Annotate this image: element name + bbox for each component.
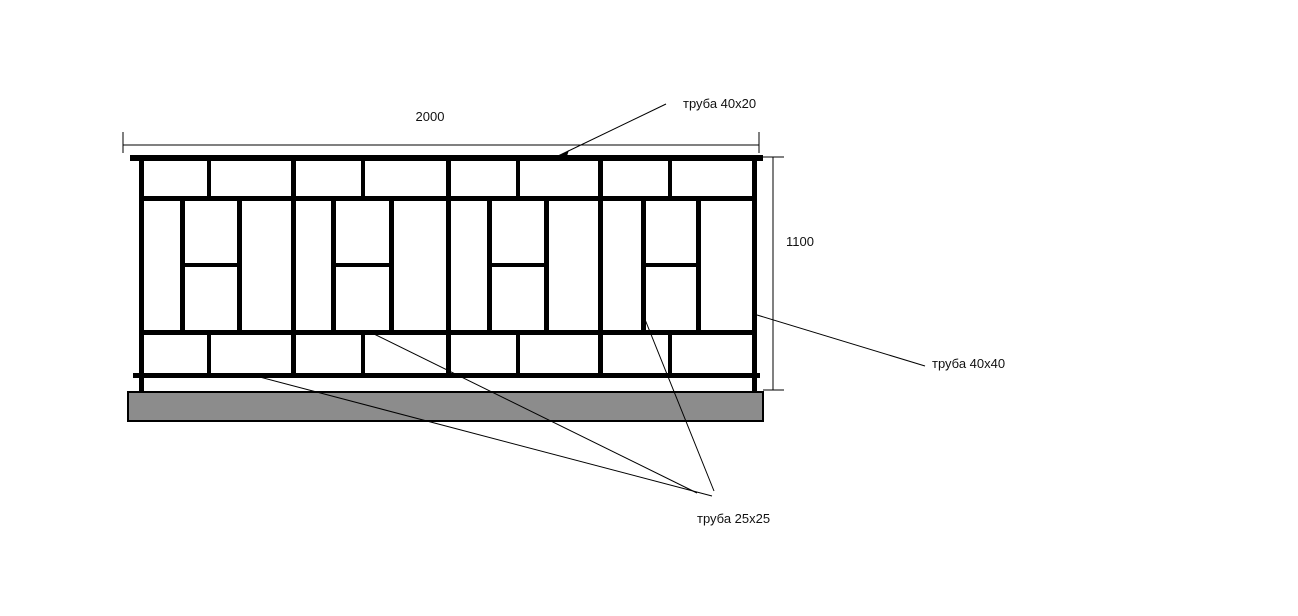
top-rail-callout-label: труба 40x20 (683, 96, 756, 111)
leader-lines (252, 104, 925, 496)
connector (487, 263, 549, 267)
divider (361, 161, 365, 197)
leader-top-rail (558, 104, 666, 156)
divider (207, 335, 211, 373)
top-rail (130, 155, 763, 161)
leader-frame (757, 315, 925, 366)
right-end-post (752, 161, 757, 392)
middle-band-connectors (180, 263, 701, 267)
divider (207, 161, 211, 197)
height-dimension (763, 157, 784, 390)
divider (516, 161, 520, 197)
fence-panel (130, 155, 763, 392)
connector (180, 263, 242, 267)
foundation-base (128, 392, 763, 421)
middle-band-bars (180, 201, 701, 330)
left-end-post (139, 161, 144, 392)
connector (331, 263, 394, 267)
main-post (446, 161, 451, 378)
divider (516, 335, 520, 373)
main-posts (291, 161, 603, 378)
width-dimension-label: 2000 (416, 109, 445, 124)
divider (668, 335, 672, 373)
main-post (291, 161, 296, 378)
fence-section-drawing: 2000 1100 (0, 0, 1298, 616)
width-dimension (123, 132, 759, 153)
drawing-canvas: 2000 1100 (0, 0, 1298, 616)
infill-callout-label: труба 25x25 (697, 511, 770, 526)
divider (361, 335, 365, 373)
divider (668, 161, 672, 197)
connector (641, 263, 701, 267)
frame-callout-label: труба 40x40 (932, 356, 1005, 371)
height-dimension-label: 1100 (786, 234, 814, 249)
main-post (598, 161, 603, 378)
